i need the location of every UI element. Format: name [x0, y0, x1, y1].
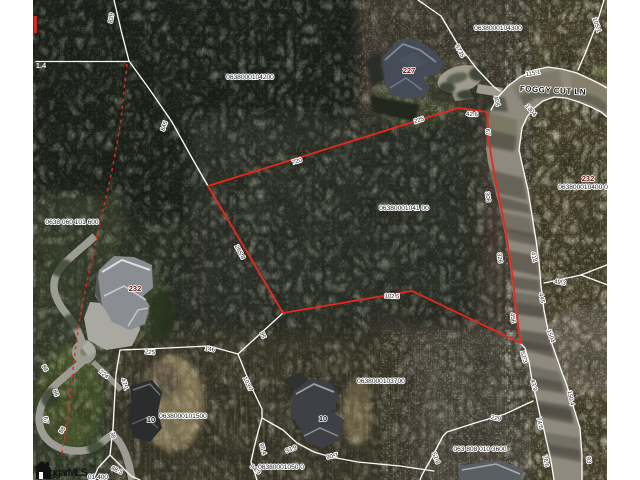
svg-text:10: 10 [319, 414, 327, 423]
svg-text:225: 225 [145, 350, 156, 357]
svg-text:10: 10 [147, 415, 155, 424]
svg-text:0638 060 101 600: 0638 060 101 600 [45, 219, 99, 226]
svg-text:232: 232 [582, 174, 595, 183]
svg-text:ggarMLS: ggarMLS [49, 467, 88, 479]
svg-text:0638000104200: 0638000104200 [226, 74, 274, 81]
svg-text:01 400: 01 400 [88, 474, 109, 480]
svg-text:06380001050 0: 06380001050 0 [258, 464, 304, 471]
svg-text:102.5: 102.5 [384, 294, 400, 301]
svg-text:232: 232 [129, 284, 142, 293]
svg-text:67: 67 [484, 128, 491, 136]
svg-text:0638000101500: 0638000101500 [159, 413, 207, 420]
svg-text:42.6: 42.6 [466, 112, 479, 119]
svg-text:1.4: 1.4 [36, 61, 47, 70]
svg-text:063800010400 0: 063800010400 0 [558, 184, 608, 191]
svg-text:TM: TM [89, 464, 96, 469]
svg-text:06380001041 00: 06380001041 00 [379, 205, 429, 212]
svg-text:227: 227 [403, 66, 416, 75]
svg-text:063 808 010 3600: 063 808 010 3600 [453, 446, 507, 453]
svg-text:0638000104300: 0638000104300 [474, 25, 522, 32]
svg-text:0638000103700: 0638000103700 [357, 378, 405, 385]
